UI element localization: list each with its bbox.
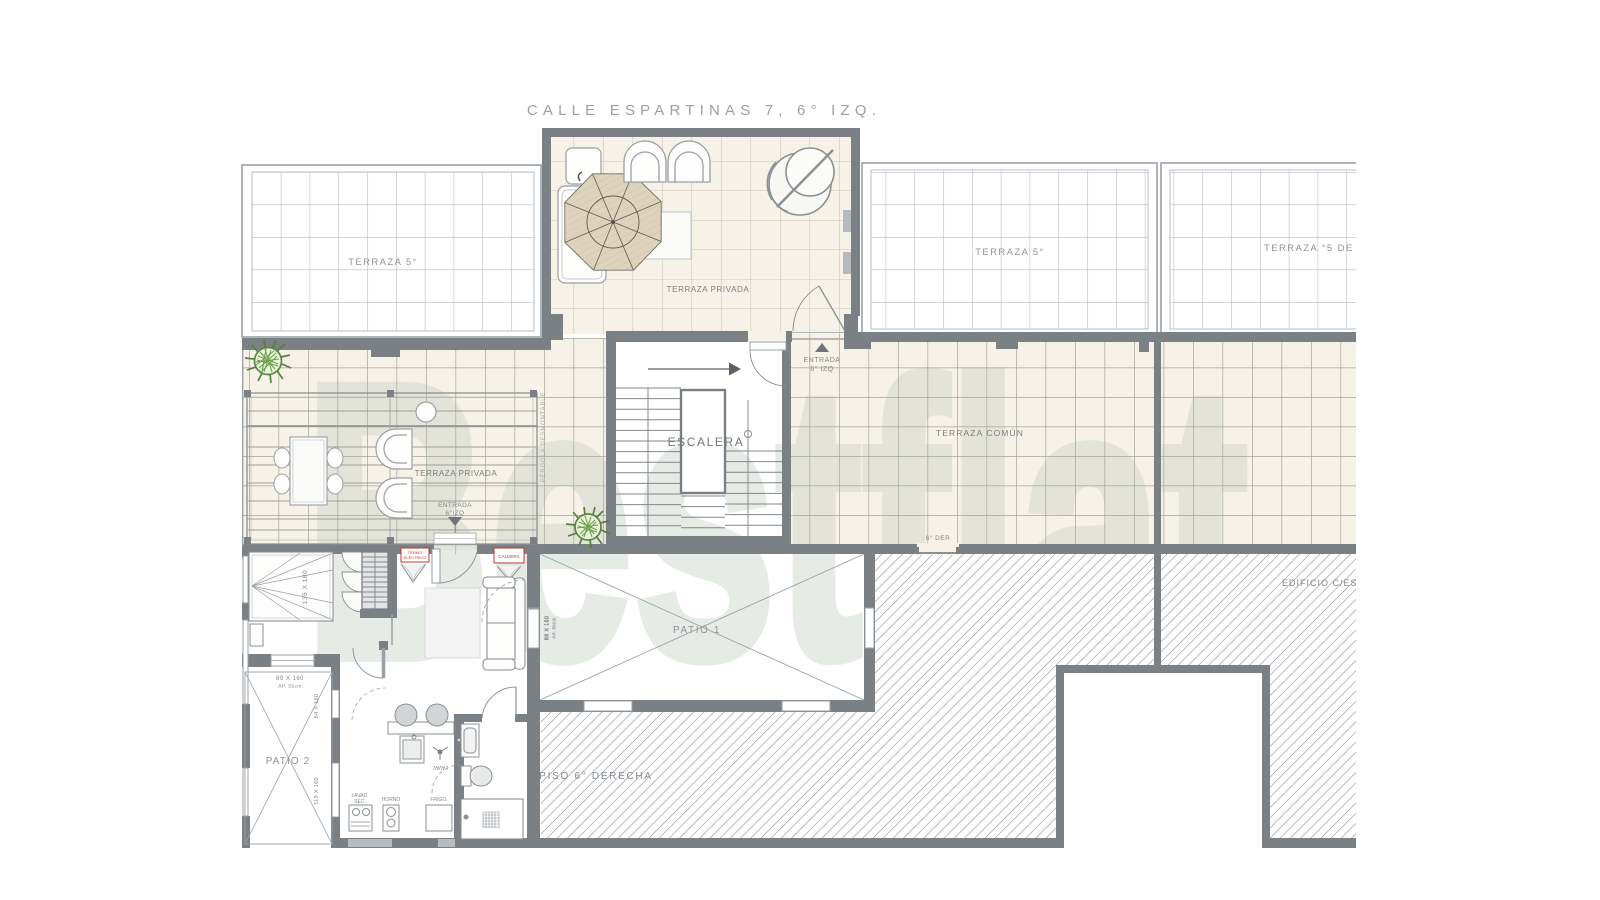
svg-text:TERRAZA 5°: TERRAZA 5° xyxy=(975,247,1045,258)
svg-text:FRIGO.: FRIGO. xyxy=(430,797,447,803)
svg-text:6° IZQ: 6° IZQ xyxy=(810,365,833,373)
svg-text:AP. 95cm: AP. 95cm xyxy=(278,684,301,690)
svg-text:HORNO: HORNO xyxy=(382,797,401,803)
svg-text:135 X 180: 135 X 180 xyxy=(302,570,309,604)
svg-text:64 X 160: 64 X 160 xyxy=(314,694,320,718)
svg-text:CALDERA: CALDERA xyxy=(498,554,519,559)
svg-text:EDIFICIO C/ESP: EDIFICIO C/ESP xyxy=(1282,578,1365,588)
svg-text:ELÉCTRICO: ELÉCTRICO xyxy=(404,555,427,560)
svg-text:ESCALERA: ESCALERA xyxy=(668,435,745,449)
svg-text:TERRAZA PRIVADA: TERRAZA PRIVADA xyxy=(667,285,750,294)
svg-text:PÉRGOLA DESMONTABLE: PÉRGOLA DESMONTABLE xyxy=(540,392,547,482)
svg-text:TERRAZA COMÚN: TERRAZA COMÚN xyxy=(936,428,1024,438)
svg-text:PATIO 1: PATIO 1 xyxy=(673,625,721,636)
svg-text:TERRAZA PRIVADA: TERRAZA PRIVADA xyxy=(415,469,498,478)
svg-text:AP. 95cm: AP. 95cm xyxy=(552,617,557,638)
svg-text:ENTRADA: ENTRADA xyxy=(438,502,472,509)
svg-text:CALLE ESPARTINAS 7, 6° IZQ.: CALLE ESPARTINAS 7, 6° IZQ. xyxy=(527,102,881,119)
svg-text:PISO 6° DERECHA: PISO 6° DERECHA xyxy=(539,771,652,782)
svg-text:89 X 160: 89 X 160 xyxy=(276,676,304,682)
svg-text:6° DER: 6° DER xyxy=(926,534,951,542)
svg-text:6°IZQ: 6°IZQ xyxy=(445,509,464,517)
svg-text:119 X 160: 119 X 160 xyxy=(314,777,320,804)
svg-text:ENTRADA: ENTRADA xyxy=(804,357,841,364)
svg-text:SEC.: SEC. xyxy=(354,799,366,805)
svg-text:89 X 160: 89 X 160 xyxy=(545,616,551,640)
svg-text:TERRAZA 5°: TERRAZA 5° xyxy=(348,257,418,268)
svg-text:PATIO 2: PATIO 2 xyxy=(266,756,311,767)
